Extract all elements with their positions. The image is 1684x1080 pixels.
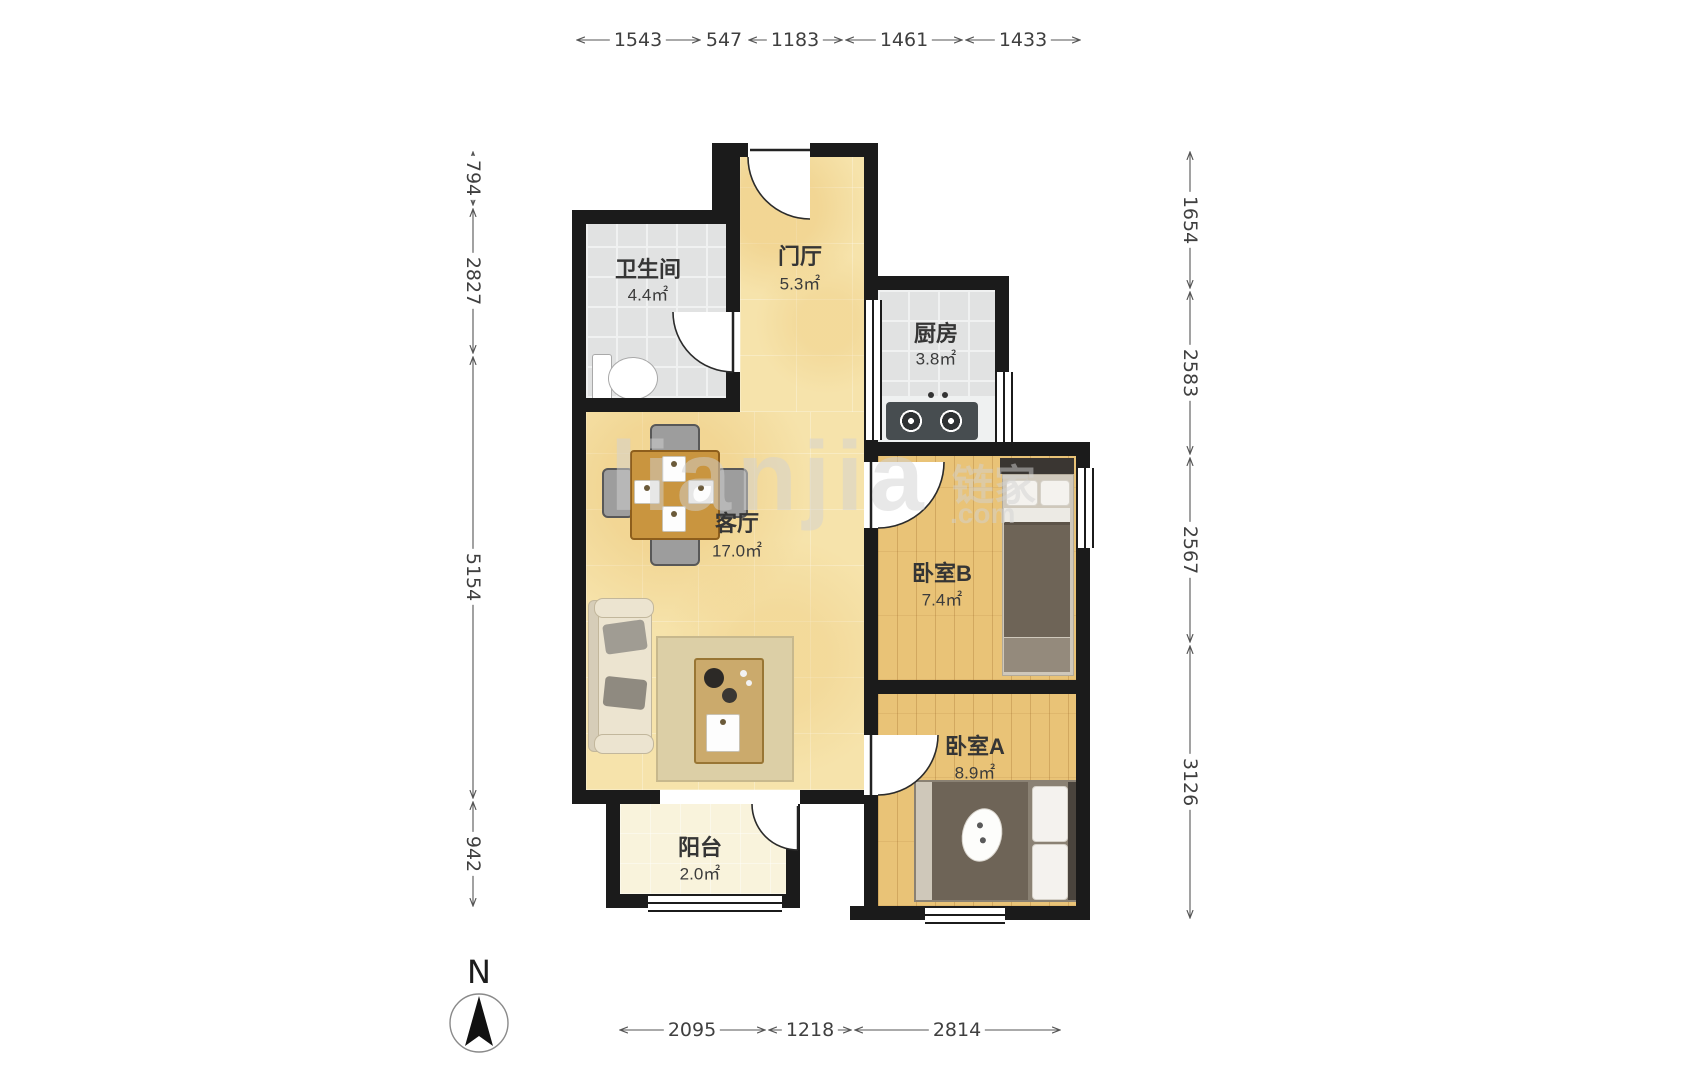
dim-left-1: 794 [462,156,484,200]
wall [864,795,878,920]
bed-a-pillow [1032,786,1068,842]
dim-top-2: 547 [702,29,746,51]
wall [786,804,800,908]
sofa-armrest [594,734,654,754]
entrance-door-opening [748,143,810,157]
bathroom-door-opening [726,312,740,372]
dim-top-5: 1433 [995,29,1051,51]
dim-left-3: 5154 [462,549,484,605]
sofa-pillow [603,676,648,710]
bed-b-pillow [1006,480,1038,506]
place-setting [634,480,660,504]
north-arrow [465,996,493,1046]
north-label: N [467,953,491,991]
dim-left-2: 2827 [462,253,484,309]
sofa-pillow [602,619,648,655]
bedroom-a-window [925,906,1005,924]
room-label-bedroom-a: 卧室A [945,729,1005,761]
stove-knob [942,392,948,398]
dim-right-3: 2567 [1179,522,1201,578]
bed-b-pillow [1040,480,1070,506]
wall [864,528,878,735]
room-label-kitchen: 厨房 [914,316,958,348]
dim-bottom-3: 2814 [929,1019,985,1041]
dim-bottom-1: 2095 [664,1019,720,1041]
room-area-balcony: 2.0㎡ [680,860,721,885]
balcony-door-opening [745,790,800,804]
bed-b-duvet [1004,522,1070,637]
room-area-living: 17.0㎡ [712,537,762,562]
room-label-bedroom-b: 卧室B [912,556,972,588]
room-label-living: 客厅 [715,506,759,538]
dim-right-2: 2583 [1179,345,1201,401]
north-compass [450,994,508,1052]
room-area-bedroom-b: 7.4㎡ [922,586,963,611]
place-setting [688,480,714,504]
bed-b-sheet [1004,508,1070,522]
room-label-bathroom: 卫生间 [615,252,681,284]
kettle [704,668,724,688]
dim-left-4: 942 [462,832,484,876]
cup [740,670,747,677]
bedroom-b-door-opening [864,462,878,528]
wall [572,398,740,412]
dim-top-4: 1461 [876,29,932,51]
bed-b-foot-blanket [1004,638,1070,672]
bedroom-a-door-opening [864,735,878,795]
wall [606,804,620,908]
stove-burner [898,408,924,434]
wall [878,680,1076,694]
stove-burner [938,408,964,434]
place-setting [662,456,686,482]
dim-top-1: 1543 [610,29,666,51]
toilet-bowl [608,357,658,400]
kitchen-sliding-door [864,300,882,440]
kitchen-window [995,372,1013,442]
room-area-bathroom: 4.4㎡ [628,281,669,306]
floorplan-canvas: lianjia 链家 .com [0,0,1684,1080]
wall [572,210,740,224]
room-area-kitchen: 3.8㎡ [916,345,957,370]
wall [726,143,740,312]
balcony-window [648,894,782,912]
tray [706,714,740,752]
wall [864,442,1090,456]
bed-a-foot-sheet [916,782,932,900]
room-label-hall: 门厅 [778,239,822,271]
bed-b-headboard [1000,458,1074,474]
cup [746,680,752,686]
cushion-dot [976,822,983,829]
place-setting [662,506,686,532]
wall [864,276,1009,290]
room-label-balcony: 阳台 [678,830,722,862]
dim-bottom-2: 1218 [782,1019,838,1041]
cushion-dot [979,837,986,844]
room-area-bedroom-a: 8.9㎡ [955,759,996,784]
sofa-armrest [594,598,654,618]
bedroom-b-window [1076,468,1094,548]
stove-knob [928,392,934,398]
bed-a-pillow [1032,844,1068,900]
kettle [722,688,737,703]
dim-right-4: 3126 [1179,754,1201,810]
wall [572,790,660,804]
dim-right-1: 1654 [1179,192,1201,248]
room-area-hall: 5.3㎡ [780,270,821,295]
dim-top-3: 1183 [767,29,823,51]
wall [572,210,586,804]
bed-a-headboard [1068,782,1076,900]
